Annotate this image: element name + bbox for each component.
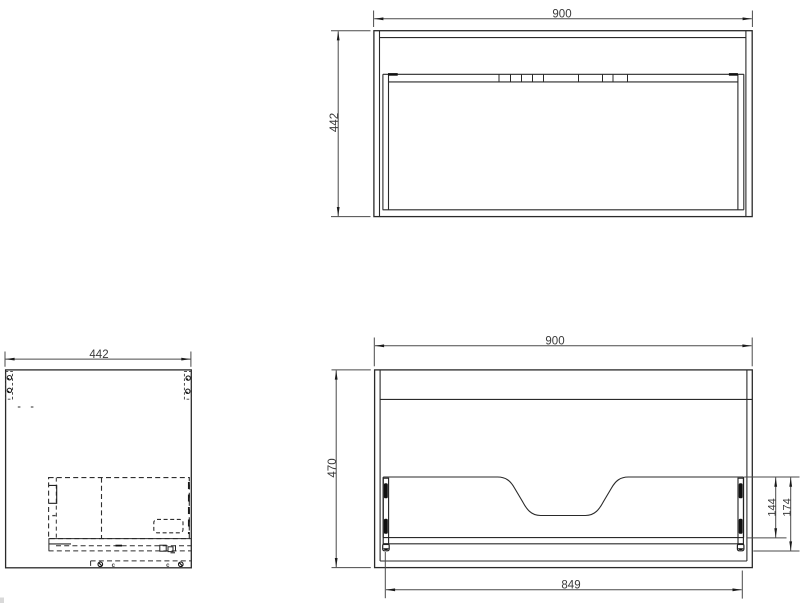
svg-text:144: 144 (766, 498, 778, 516)
svg-text:900: 900 (552, 9, 571, 21)
svg-text:174: 174 (782, 498, 794, 516)
svg-text:470: 470 (327, 458, 339, 477)
svg-text:442: 442 (329, 113, 341, 132)
svg-text:900: 900 (545, 336, 564, 348)
svg-text:442: 442 (89, 349, 108, 361)
svg-text:849: 849 (561, 579, 580, 591)
